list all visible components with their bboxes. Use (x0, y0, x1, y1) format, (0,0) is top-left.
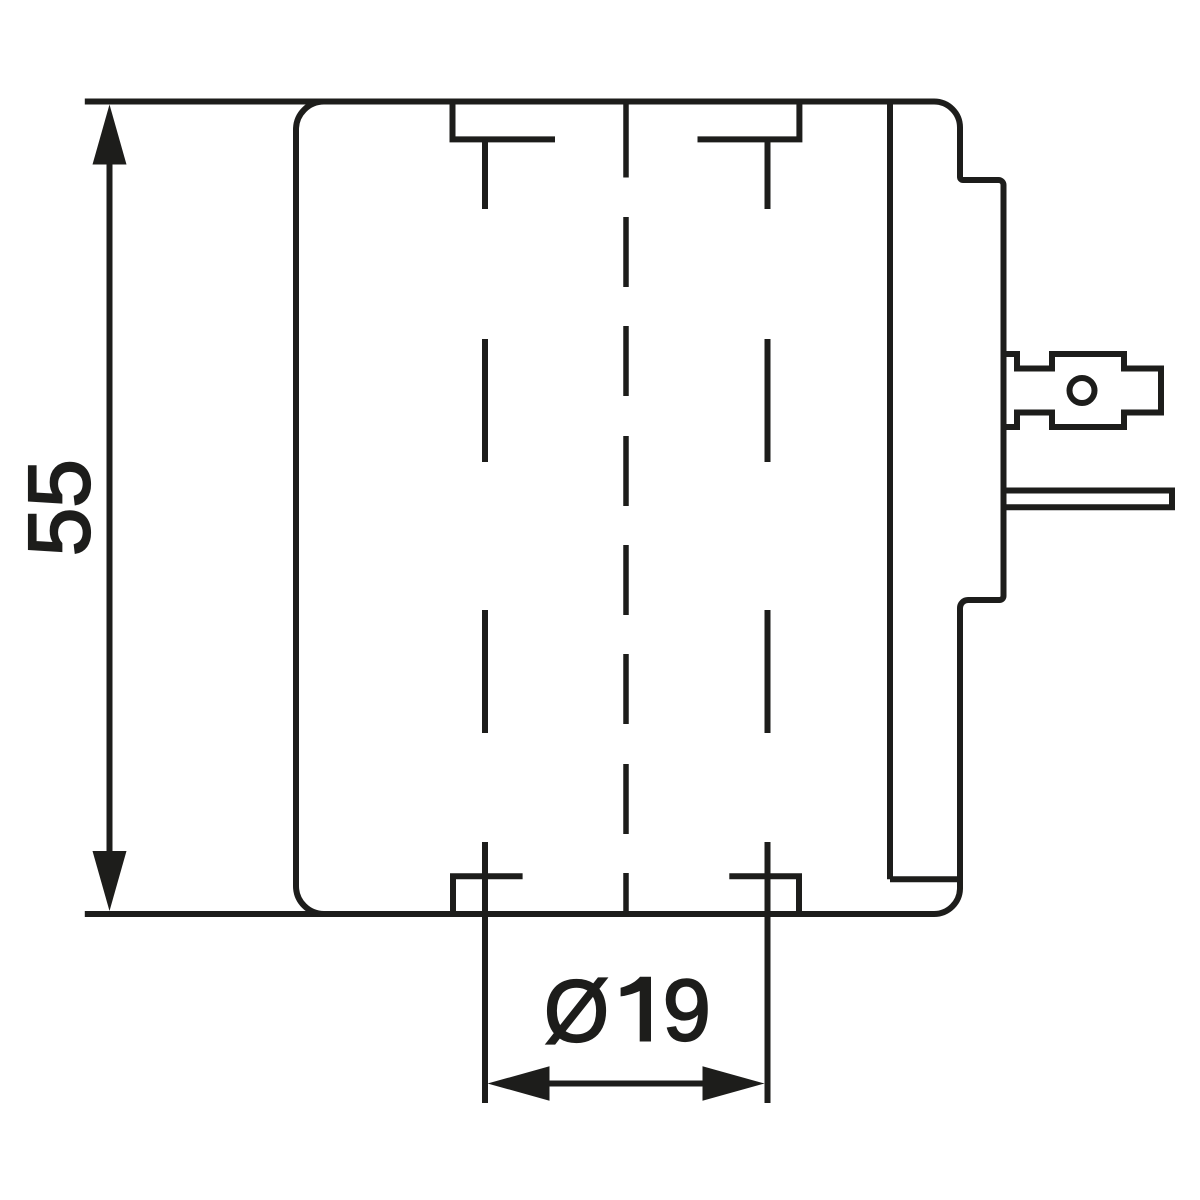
svg-text:Ø: Ø (544, 963, 609, 1060)
svg-text:55: 55 (10, 459, 108, 556)
svg-text:9: 9 (663, 962, 711, 1060)
